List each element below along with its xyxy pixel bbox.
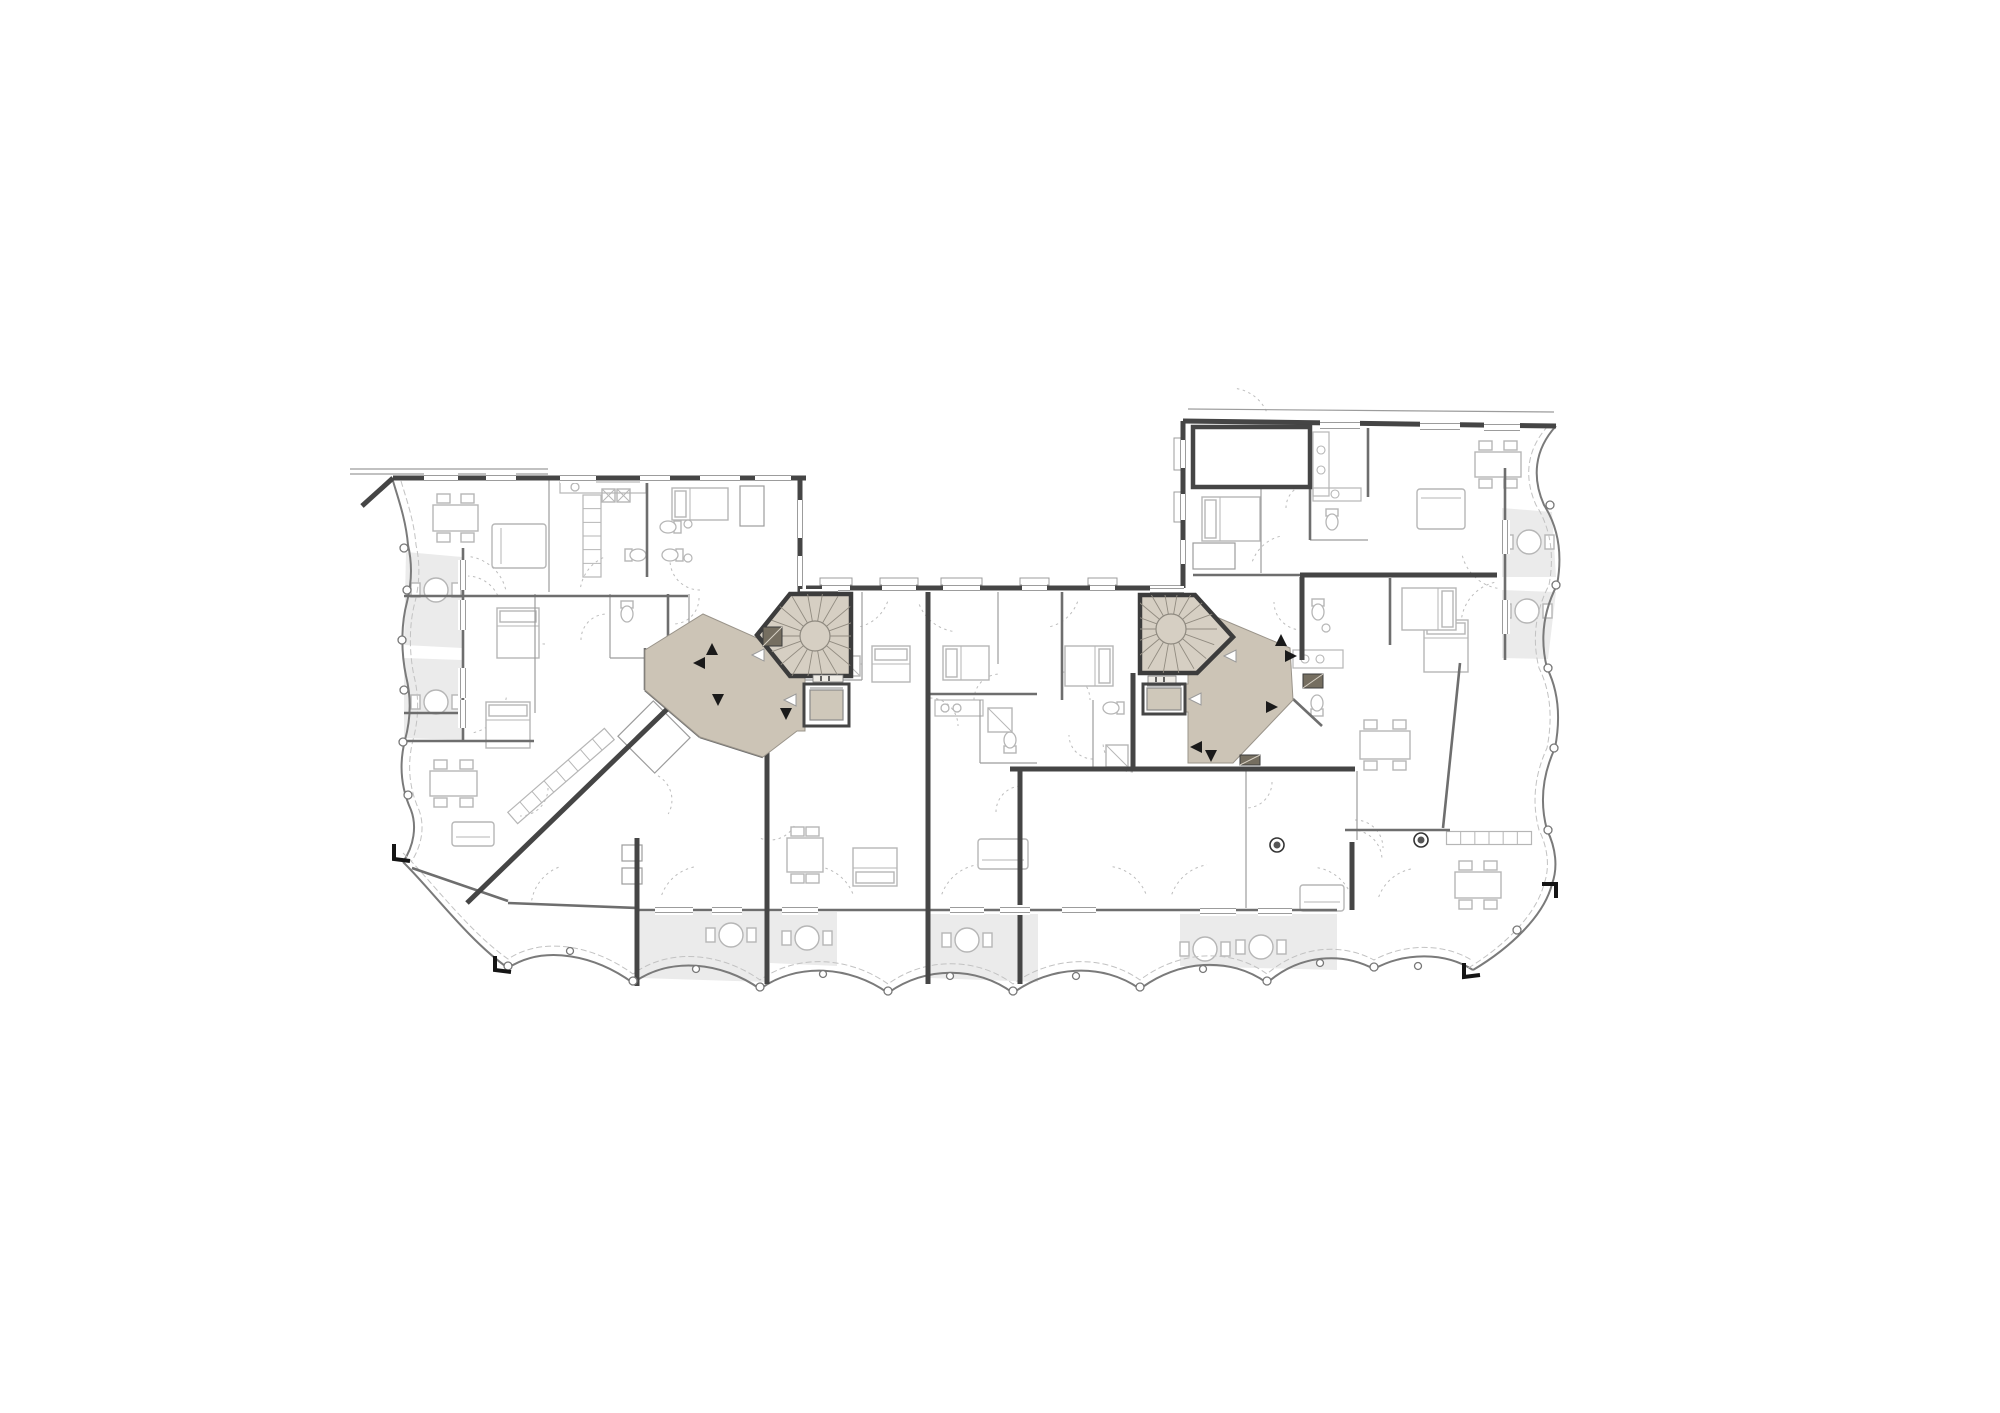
floor-plan-page bbox=[0, 0, 2000, 1413]
window-sills bbox=[820, 438, 1181, 585]
floor-drains bbox=[1270, 833, 1428, 852]
door-swing-arcs bbox=[467, 389, 1497, 901]
walls-dark bbox=[362, 421, 1556, 986]
core-right bbox=[1125, 584, 1323, 765]
floor-plan-drawing bbox=[0, 0, 2000, 1413]
core-left bbox=[645, 591, 861, 757]
furniture bbox=[411, 432, 1554, 961]
